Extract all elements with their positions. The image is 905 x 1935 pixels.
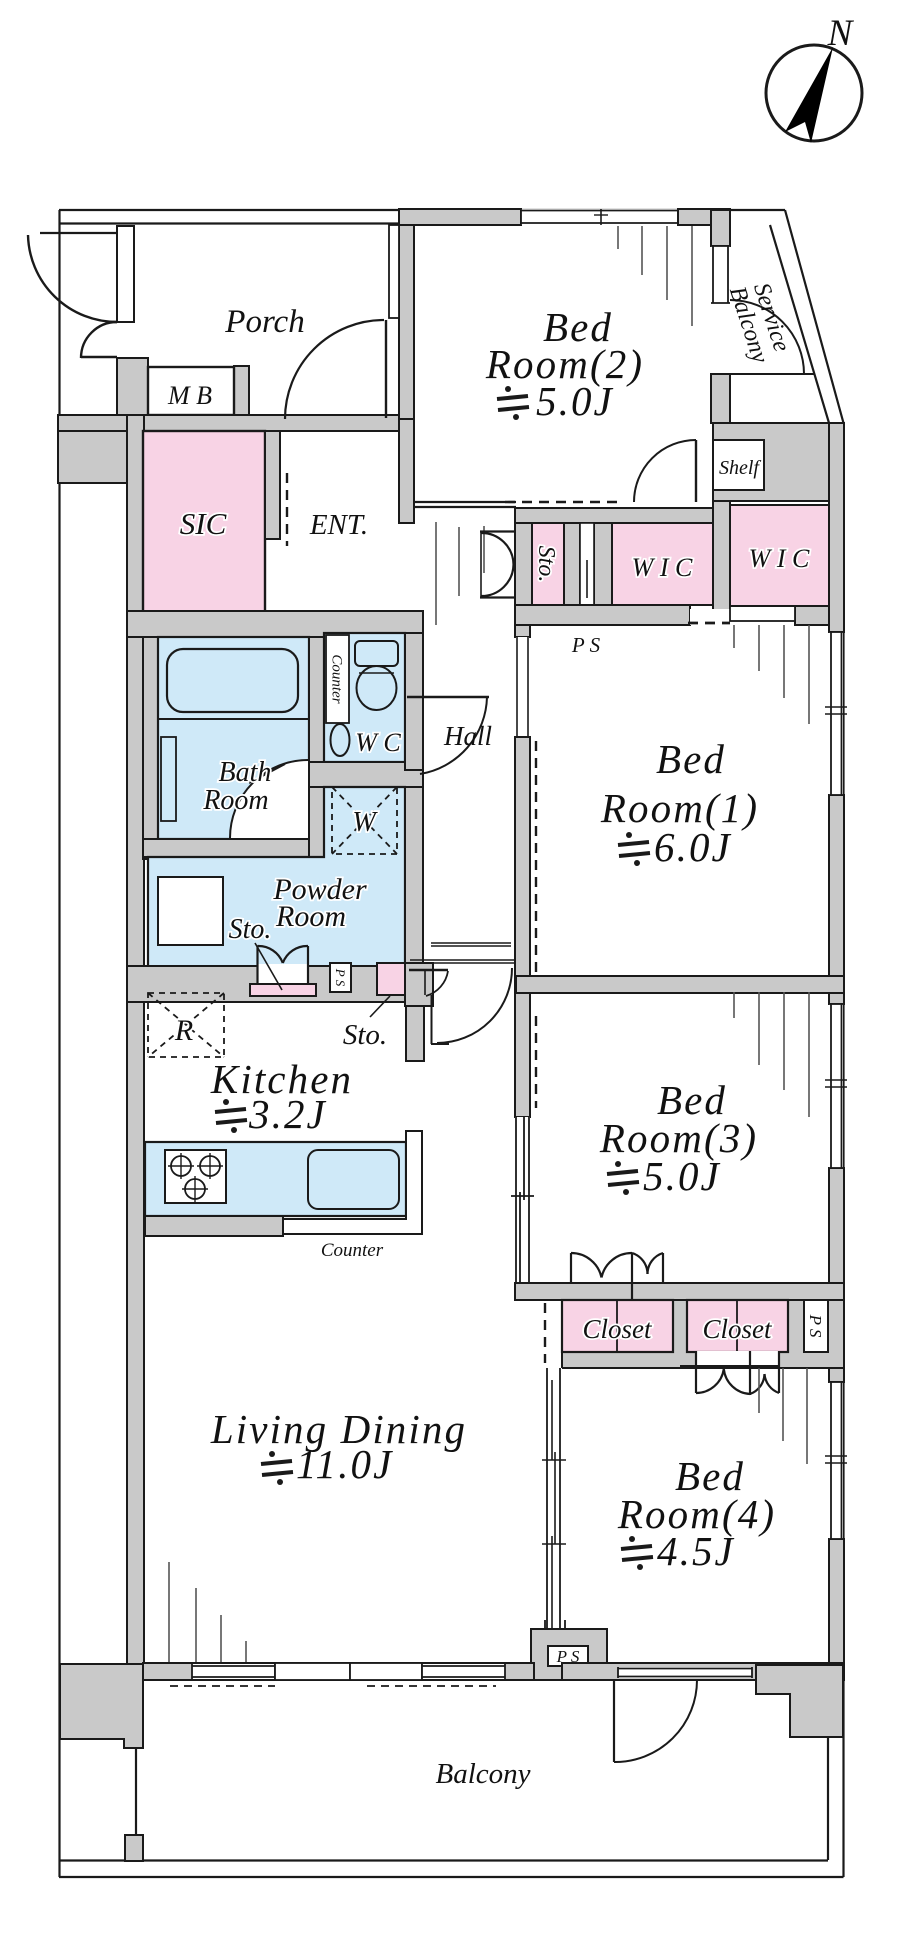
svg-text:W I C: W I C	[749, 544, 810, 573]
svg-text:Sto.: Sto.	[229, 914, 272, 945]
svg-text:4.5J: 4.5J	[657, 1528, 735, 1574]
svg-text:Room: Room	[275, 900, 346, 933]
svg-text:5.0J: 5.0J	[643, 1153, 721, 1199]
svg-text:5.0J: 5.0J	[536, 378, 614, 424]
svg-text:P S: P S	[333, 968, 348, 987]
svg-text:SIC: SIC	[180, 506, 227, 541]
svg-text:N: N	[827, 13, 855, 54]
svg-text:Bed: Bed	[656, 736, 726, 782]
svg-text:Porch: Porch	[224, 304, 304, 340]
svg-text:W C: W C	[355, 728, 401, 757]
svg-text:6.0J: 6.0J	[654, 824, 732, 870]
svg-text:Bath: Bath	[219, 757, 272, 788]
svg-text:Closet: Closet	[582, 1314, 653, 1344]
svg-text:P S: P S	[806, 1314, 825, 1338]
svg-text:Counter: Counter	[329, 654, 345, 703]
svg-text:3.2J: 3.2J	[248, 1091, 327, 1137]
svg-text:Shelf: Shelf	[719, 457, 761, 479]
svg-text:Room: Room	[202, 785, 268, 816]
svg-text:R: R	[174, 1014, 193, 1047]
svg-text:M B: M B	[167, 381, 212, 410]
svg-text:Balcony: Balcony	[435, 1758, 530, 1790]
svg-text:P S: P S	[571, 633, 601, 657]
svg-text:ENT.: ENT.	[309, 509, 368, 541]
svg-text:Hall: Hall	[443, 721, 492, 751]
svg-text:Sto.: Sto.	[343, 1019, 387, 1051]
svg-text:Closet: Closet	[702, 1314, 773, 1344]
svg-text:W: W	[352, 807, 378, 838]
svg-text:W I C: W I C	[632, 553, 693, 582]
svg-text:11.0J: 11.0J	[296, 1441, 393, 1487]
svg-text:Counter: Counter	[321, 1240, 384, 1261]
svg-text:Sto.: Sto.	[533, 546, 559, 583]
